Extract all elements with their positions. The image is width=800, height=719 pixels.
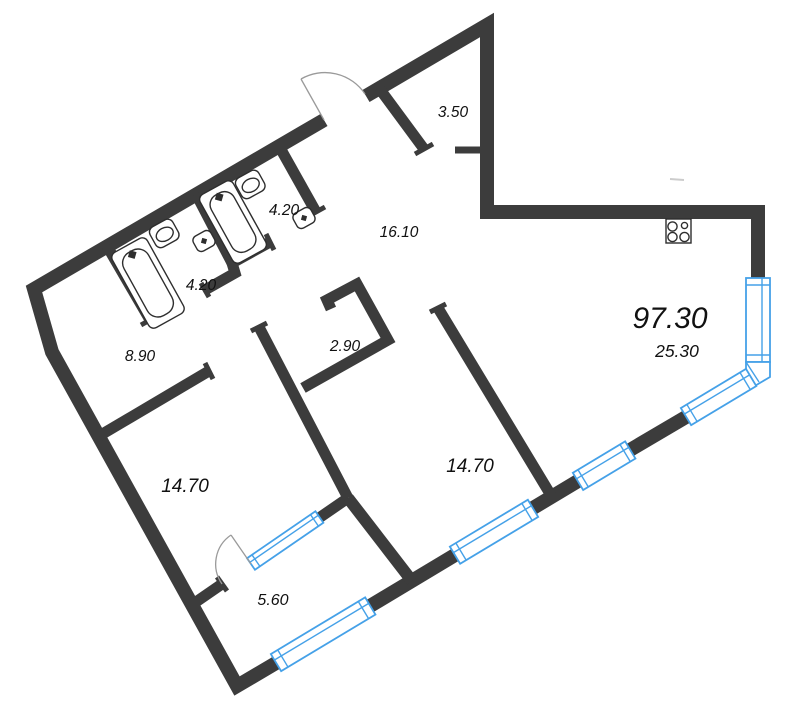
room-label-bedroom-center: 14.70 bbox=[446, 456, 494, 477]
stray-mark bbox=[670, 179, 684, 180]
wall bbox=[99, 371, 209, 436]
window-symbol bbox=[573, 441, 636, 490]
window-symbol bbox=[746, 278, 770, 362]
room-label-inner-hallway: 8.90 bbox=[125, 348, 156, 365]
living-room-area-label: 25.30 bbox=[654, 341, 699, 361]
entrance-door bbox=[301, 73, 365, 120]
room-label-bedroom-left: 14.70 bbox=[161, 476, 209, 497]
stove-icon bbox=[666, 219, 691, 243]
window-symbol bbox=[247, 511, 323, 570]
room-label-bathroom-left: 4.20 bbox=[186, 277, 217, 294]
floor-plan-drawing: 3.50 4.20 4.20 16.10 8.90 2.90 14.70 14.… bbox=[0, 0, 800, 719]
room-label-bathroom-right: 4.20 bbox=[269, 202, 300, 219]
wall bbox=[379, 88, 424, 149]
total-area-label: 97.30 bbox=[632, 302, 707, 335]
wall bbox=[366, 25, 758, 278]
wall bbox=[348, 498, 412, 581]
window-symbol bbox=[681, 369, 756, 425]
wall bbox=[193, 584, 222, 604]
bathtub-icon bbox=[110, 236, 187, 331]
room-label-corridor: 16.10 bbox=[380, 224, 419, 241]
room-label-closet: 2.90 bbox=[329, 338, 361, 355]
wall bbox=[319, 498, 348, 518]
wall bbox=[630, 417, 686, 450]
room-label-entry-hall: 3.50 bbox=[438, 104, 469, 121]
room-label-balcony: 5.60 bbox=[257, 592, 288, 609]
wall bbox=[303, 284, 388, 388]
window-symbol bbox=[450, 500, 538, 564]
floor-plan: 3.50 4.20 4.20 16.10 8.90 2.90 14.70 14.… bbox=[0, 0, 800, 719]
windows bbox=[247, 278, 770, 671]
balcony-door bbox=[216, 535, 251, 584]
